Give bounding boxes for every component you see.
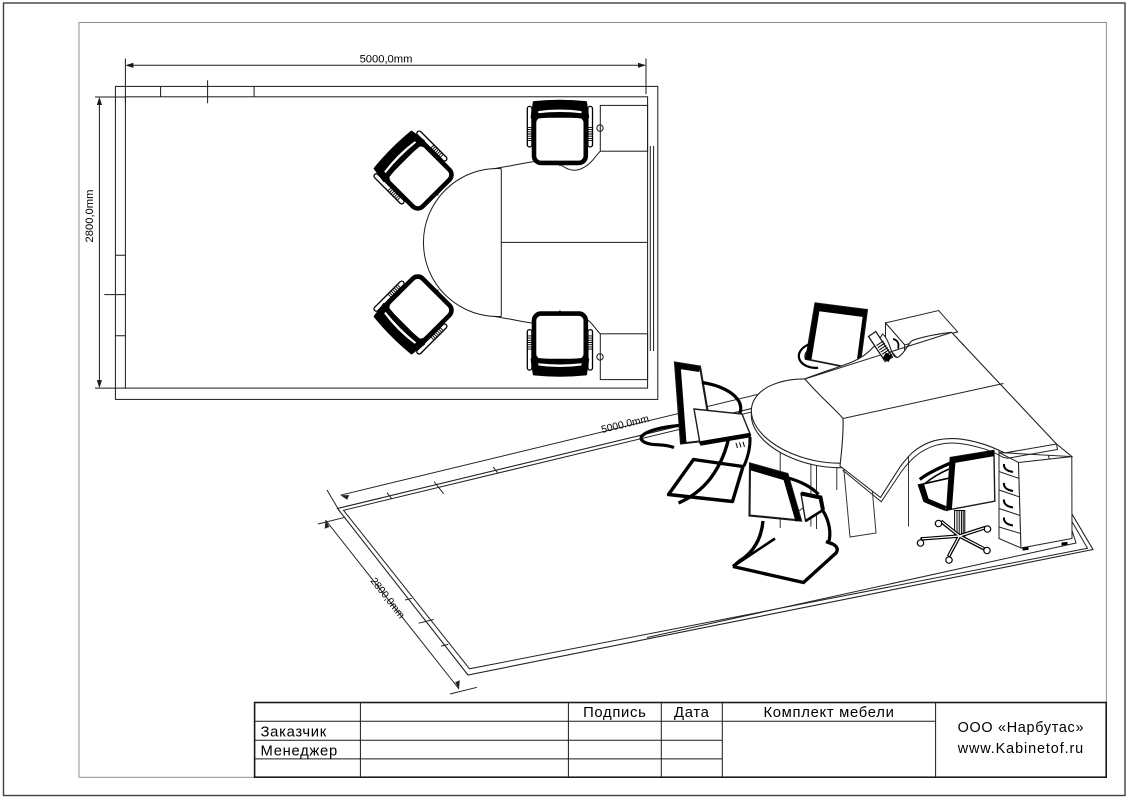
svg-text:2800,0mm: 2800,0mm bbox=[84, 190, 96, 243]
svg-text:ООО «Нарбутас»: ООО «Нарбутас» bbox=[958, 720, 1085, 736]
svg-text:5000,0mm: 5000,0mm bbox=[360, 54, 413, 66]
svg-text:Дата: Дата bbox=[674, 705, 710, 721]
svg-text:Менеджер: Менеджер bbox=[261, 743, 338, 759]
svg-text:Комплект мебели: Комплект мебели bbox=[763, 705, 894, 721]
svg-text:Заказчик: Заказчик bbox=[261, 724, 327, 740]
svg-text:5000.0mm: 5000.0mm bbox=[600, 414, 650, 436]
svg-text:www.Kabinetof.ru: www.Kabinetof.ru bbox=[957, 741, 1084, 757]
svg-text:Подпись: Подпись bbox=[583, 705, 646, 721]
